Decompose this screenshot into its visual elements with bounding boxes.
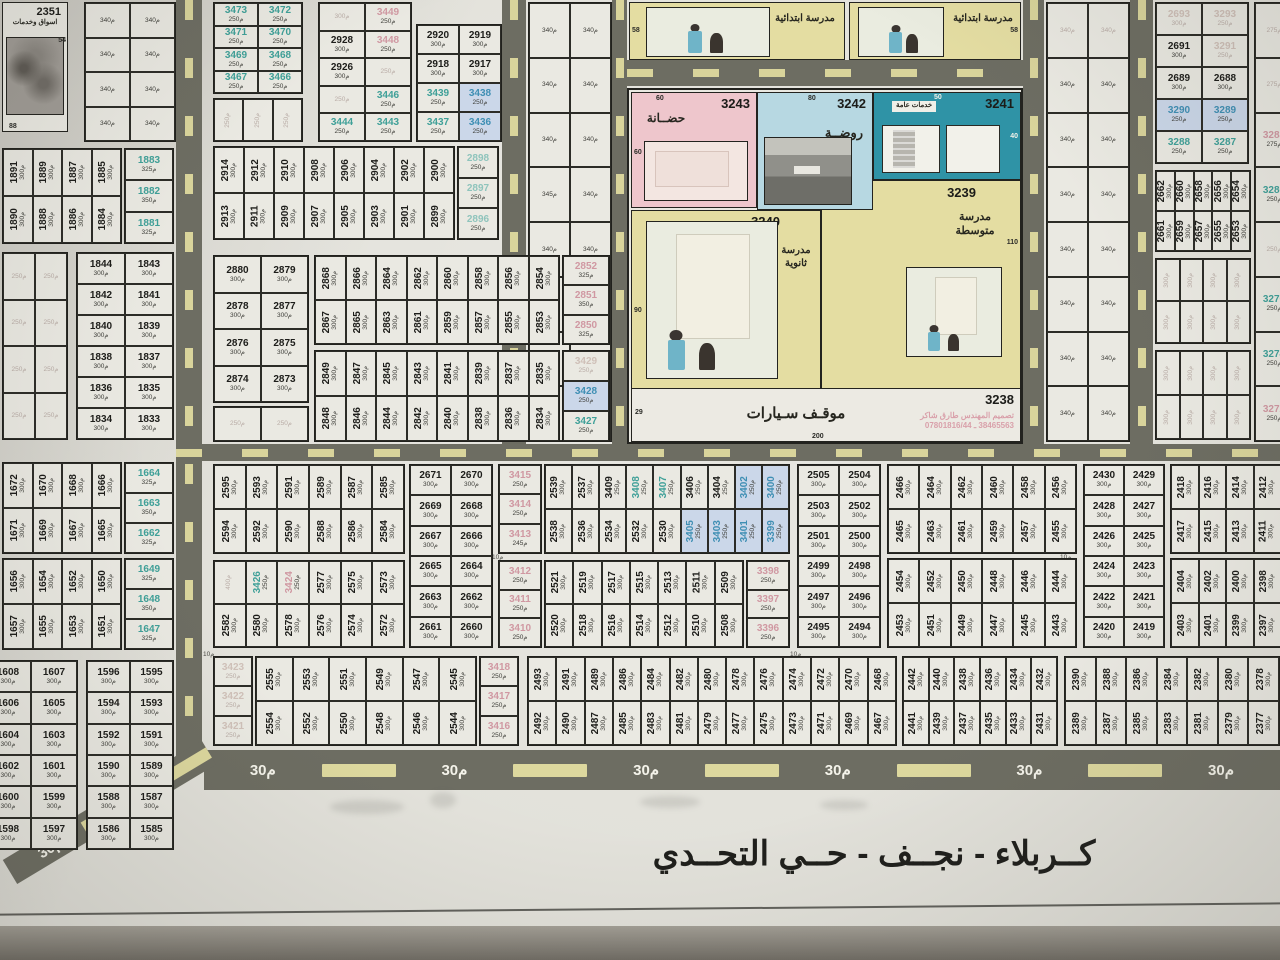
plot-2834: 2834م300	[529, 396, 560, 441]
plot-2668: 2668م300	[451, 495, 492, 525]
plot-2466: 2466م300	[888, 465, 919, 509]
plot-unlabeled: م340	[130, 107, 175, 142]
plot-2458: 2458م300	[1013, 465, 1044, 509]
plot-2875: 2875م300	[261, 329, 308, 366]
plot-2419: 2419م300	[1124, 617, 1164, 647]
plot-2586: 2586م300	[341, 509, 373, 553]
plot-3437: 3437م250	[417, 112, 459, 141]
plot-block-m2898: 2898م2502897م2502896م250	[457, 146, 499, 240]
plot-1666: 1666م300	[92, 463, 122, 508]
plot-unlabeled: م340	[570, 58, 611, 113]
plot-3470: 3470م250	[258, 26, 302, 49]
plot-2670: 2670م300	[451, 465, 492, 495]
plot-1604: 1604م300	[0, 724, 31, 755]
plot-2414: 2414م300	[1226, 465, 1254, 509]
plot-block-m2880: 2880م3002879م3002878م3002877م3002876م300…	[213, 255, 309, 403]
plot-3404: 3404م250	[708, 465, 735, 509]
plot-2539: 2539م300	[545, 465, 572, 509]
dim-label: 60	[656, 95, 664, 102]
plot-2450: 2450م300	[951, 559, 982, 603]
plot-1587: 1587م300	[130, 786, 173, 817]
plot-1672: 1672م300	[3, 463, 33, 508]
plot-block-mb2404: 2404م3002402م3002400م3002398م3002403م300…	[1170, 558, 1280, 648]
plot-2862: 2862م300	[407, 256, 438, 300]
plot-2848: 2848م300	[315, 396, 346, 441]
plot-3421: 3421م250	[214, 716, 252, 745]
plot-1585: 1585م300	[130, 818, 173, 849]
plot-1883: 1883م325	[125, 149, 173, 180]
dim-label: 58	[1010, 27, 1018, 34]
plot-unlabeled: م340	[1088, 332, 1129, 387]
plot-unlabeled: م340	[1047, 222, 1088, 277]
plot-2440: 2440م300	[929, 657, 955, 701]
plot-3403: 3403م250	[708, 509, 735, 553]
plot-2453: 2453م300	[888, 603, 919, 647]
plot-1835: 1835م300	[125, 377, 173, 408]
plot-2510: 2510م300	[686, 604, 714, 647]
plot-2496: 2496م300	[839, 586, 880, 616]
plot-1888: 1888م300	[33, 196, 63, 243]
plot-2578: 2578م300	[277, 604, 309, 647]
plot-2441: 2441م300	[903, 701, 929, 745]
plot-2576: 2576م300	[309, 604, 341, 647]
plot-2385: 2385م300	[1126, 701, 1157, 745]
plot-3289: 3289م250	[1202, 99, 1248, 131]
kid-figure-icon	[710, 33, 723, 53]
plot-2876: 2876م300	[214, 329, 261, 366]
plot-2397: 2397م300	[1254, 603, 1280, 647]
plot-2595: 2595م300	[214, 465, 246, 509]
plot-2538: 2538م300	[545, 509, 572, 553]
plot-2585: 2585م300	[372, 465, 404, 509]
plot-2855: 2855م300	[498, 300, 529, 344]
plot-2477: 2477م300	[726, 701, 754, 745]
plot-unlabeled: م300	[1203, 259, 1227, 301]
plot-2573: 2573م300	[372, 561, 404, 604]
plot-2429: 2429م300	[1124, 465, 1164, 495]
plot-unlabeled: م340	[85, 3, 130, 38]
block-id: 3238	[985, 392, 1014, 407]
block-id: 3242	[837, 96, 866, 111]
plot-2906: 2906م300	[334, 147, 364, 193]
block-label: مدرسة ثانوية	[776, 245, 816, 270]
dim-label: 200	[812, 433, 824, 440]
plot-unlabeled: م340	[529, 3, 570, 58]
plot-unlabeled: م340	[130, 38, 175, 73]
paper-edge-line	[0, 902, 1280, 915]
plot-block-bb3418: 3418م2503417م2503416م250	[479, 656, 519, 746]
plot-2851: 2851م350	[563, 285, 609, 314]
plot-2854: 2854م300	[529, 256, 560, 300]
plot-3406: 3406م250	[681, 465, 708, 509]
plot-2688: 2688م300	[1202, 67, 1248, 99]
plot-2660: 2660م300	[1175, 171, 1194, 211]
plot-2476: 2476م300	[754, 657, 782, 701]
plot-block-l1607: 1608م3001607م3001606م3001605م3001604م300…	[0, 660, 78, 850]
plot-2863: 2863م300	[376, 300, 407, 344]
plot-1889: 1889م300	[33, 149, 63, 196]
plot-2508: 2508م300	[715, 604, 743, 647]
plot-3398: 3398م250	[747, 561, 789, 590]
plot-2500: 2500م300	[839, 526, 880, 556]
plot-unlabeled: م340	[85, 72, 130, 107]
school-drawing	[646, 7, 770, 57]
plot-3407: 3407م250	[653, 465, 680, 509]
plot-3413: 3413م245	[499, 524, 541, 553]
plot-2467: 2467م300	[868, 701, 896, 745]
plot-2424: 2424م300	[1084, 556, 1124, 586]
plot-1657: 1657م300	[3, 604, 33, 649]
plot-2860: 2860م300	[437, 256, 468, 300]
road-dash	[513, 764, 587, 777]
plot-block-r2691: 2693م3003293م2502691م3003291م2502689م300…	[1155, 2, 1249, 164]
plot-2502: 2502م300	[839, 495, 880, 525]
plot-block-rfadeB: م300م300م300م300م300م300م300م300	[1155, 350, 1251, 440]
plot-block-mb2539: 2539م3002537م3003409م2503408م2503407م250…	[544, 464, 790, 554]
plot-2470: 2470م300	[839, 657, 867, 701]
plot-2575: 2575م300	[341, 561, 373, 604]
plot-unlabeled: م300	[319, 3, 365, 31]
plot-1839: 1839م300	[125, 315, 173, 346]
plot-1884: 1884م300	[92, 196, 122, 243]
plot-1653: 1653م300	[62, 604, 92, 649]
plot-2662: 2662م300	[1156, 171, 1175, 211]
plot-2411: 2411م300	[1254, 509, 1280, 553]
plot-1654: 1654م300	[33, 559, 63, 604]
block-label: خدمات عامة	[892, 101, 936, 112]
plot-unlabeled: م250	[35, 346, 67, 393]
plot-2659: 2659م300	[1175, 211, 1194, 251]
plot-1602: 1602م300	[0, 755, 31, 786]
plot-unlabeled: م250	[3, 300, 35, 347]
plot-2487: 2487م300	[585, 701, 613, 745]
plot-2835: 2835م300	[529, 351, 560, 396]
plot-2850: 2850م325	[563, 315, 609, 344]
plot-block-r2662: 2662م3002660م3002658م3002656م3002654م300…	[1155, 170, 1251, 252]
plot-2655: 2655م300	[1212, 211, 1231, 251]
plot-1596: 1596م300	[87, 661, 130, 692]
plot-2492: 2492م300	[528, 701, 556, 745]
plot-1593: 1593م300	[130, 692, 173, 723]
road-main-30m: 30م30م30م30م30م30م	[204, 750, 1280, 790]
plot-1652: 1652م300	[62, 559, 92, 604]
plot-2846: 2846م300	[346, 396, 377, 441]
plot-2404: 2404م300	[1171, 559, 1199, 603]
plot-unlabeled: م275	[1255, 58, 1280, 113]
plot-2457: 2457م300	[1013, 509, 1044, 553]
plot-1841: 1841م300	[125, 284, 173, 315]
plot-unlabeled: م250	[35, 253, 67, 300]
plot-3408: 3408م250	[626, 465, 653, 509]
plot-2653: 2653م300	[1231, 211, 1250, 251]
plot-3290: 3290م250	[1156, 99, 1202, 131]
plot-1606: 1606م300	[0, 692, 31, 723]
plot-2456: 2456م300	[1045, 465, 1076, 509]
plot-unlabeled: م340	[1047, 3, 1088, 58]
plot-block-la340: م340م340م340م340م340م340م340م340	[84, 2, 176, 142]
plot-2897: 2897م250	[458, 178, 498, 209]
plot-unlabeled: م300	[1156, 301, 1180, 343]
plot-2403: 2403م300	[1171, 603, 1199, 647]
plot-2868: 2868م300	[315, 256, 346, 300]
plot-2505: 2505م300	[798, 465, 839, 495]
plot-2514: 2514م300	[630, 604, 658, 647]
plot-1599: 1599م300	[31, 786, 77, 817]
plot-2422: 2422م300	[1084, 586, 1124, 616]
plot-unlabeled: م250	[3, 346, 35, 393]
plot-2482: 2482م300	[670, 657, 698, 701]
plot-2402: 2402م300	[1199, 559, 1227, 603]
plot-2383: 2383م300	[1157, 701, 1188, 745]
kid-figure-icon	[948, 334, 959, 351]
plot-2486: 2486م300	[613, 657, 641, 701]
plot-2465: 2465م300	[888, 509, 919, 553]
plot-2513: 2513م300	[658, 561, 686, 604]
road-dash	[897, 764, 971, 777]
plot-3276: 3276م250	[1255, 277, 1280, 332]
plot-block-bb3423: 3423م2503422م2503421م250	[213, 656, 253, 746]
plot-2873: 2873م300	[261, 366, 308, 403]
plot-2436: 2436م300	[980, 657, 1006, 701]
plot-1671: 1671م300	[3, 508, 33, 553]
plot-block-m2928: م3003449م2502928م3003448م2502926م300م250…	[318, 2, 412, 142]
plot-block-m2868: 2868م3002866م3002864م3002862م3002860م300…	[314, 255, 560, 345]
plot-unlabeled: م340	[1047, 58, 1088, 113]
plot-2919: 2919م300	[459, 25, 501, 54]
dim-label: 40	[1010, 133, 1018, 140]
plot-1650: 1650م300	[92, 559, 122, 604]
plot-1601: 1601م300	[31, 755, 77, 786]
plot-2534: 2534م300	[599, 509, 626, 553]
plot-2902: 2902م300	[394, 147, 424, 193]
plot-2413: 2413م300	[1226, 509, 1254, 553]
road-vertical-2	[612, 0, 627, 444]
plot-unlabeled: م300	[1203, 301, 1227, 343]
plot-1881: 1881م325	[125, 212, 173, 243]
plot-block-bb2442: 2442م3002440م3002438م3002436م3002434م300…	[902, 656, 1058, 746]
plot-3405: 3405م250	[681, 509, 708, 553]
road-30m-label: 30م	[250, 761, 276, 779]
plot-2657: 2657م300	[1194, 211, 1213, 251]
building-sketch	[935, 277, 976, 335]
plot-2518: 2518م300	[573, 604, 601, 647]
road-30m-label: 30م	[1016, 761, 1042, 779]
plot-2379: 2379م300	[1218, 701, 1249, 745]
plot-2427: 2427م300	[1124, 495, 1164, 525]
plot-2658: 2658م300	[1194, 171, 1213, 211]
plot-2847: 2847م300	[346, 351, 377, 396]
plot-2580: 2580م300	[246, 604, 278, 647]
plot-2843: 2843م300	[407, 351, 438, 396]
plot-2399: 2399م300	[1226, 603, 1254, 647]
plot-3272: 3272م250	[1255, 386, 1280, 441]
plot-2572: 2572م300	[372, 604, 404, 647]
plot-2469: 2469م300	[839, 701, 867, 745]
plot-3287: 3287م250	[1202, 131, 1248, 163]
plot-2920: 2920م300	[417, 25, 459, 54]
plot-2499: 2499م300	[798, 556, 839, 586]
plot-1885: 1885م300	[92, 149, 122, 196]
plot-2867: 2867م300	[315, 300, 346, 344]
plot-2478: 2478م300	[726, 657, 754, 701]
plot-unlabeled: م340	[1088, 58, 1129, 113]
plot-3448: 3448م250	[365, 31, 411, 59]
plot-2420: 2420م300	[1084, 617, 1124, 647]
plot-unlabeled: م250	[1255, 222, 1280, 277]
plot-2415: 2415م300	[1199, 509, 1227, 553]
plot-block-m2920: 2920م3002919م3002918م3002917م3003439م250…	[416, 24, 502, 142]
kindergarten-photo	[764, 137, 852, 205]
plot-unlabeled: م250	[35, 393, 67, 440]
plot-unlabeled: م340	[1047, 167, 1088, 222]
plot-unlabeled: م340	[1088, 167, 1129, 222]
building-sketch	[676, 234, 751, 339]
plot-block-l1891: 1891م3001889م3001887م3001885م3001890م300…	[2, 148, 122, 244]
plot-2912: 2912م300	[244, 147, 274, 193]
plot-3428: 3428م250	[563, 381, 609, 411]
plot-3283: 3283م275	[1255, 113, 1280, 168]
road-30m-label: 30م	[441, 761, 467, 779]
plot-2462: 2462م300	[951, 465, 982, 509]
plot-block-mb2430: 2430م3002429م3002428م3002427م3002426م300…	[1083, 464, 1165, 648]
plot-unlabeled: م400	[214, 561, 246, 604]
plot-3280: 3280م250	[1255, 167, 1280, 222]
plot-2840: 2840م300	[437, 396, 468, 441]
plot-2837: 2837م300	[498, 351, 529, 396]
plot-2660: 2660م300	[451, 617, 492, 647]
plot-2381: 2381م300	[1187, 701, 1218, 745]
plot-2842: 2842م300	[407, 396, 438, 441]
plot-1662: 1662م325	[125, 523, 173, 553]
plot-2387: 2387م300	[1096, 701, 1127, 745]
map-title: كــربلاء - نجــف - حــي التحــدي	[648, 834, 1100, 874]
plot-1663: 1663م350	[125, 493, 173, 523]
plot-2471: 2471م300	[811, 701, 839, 745]
plot-2536: 2536م300	[572, 509, 599, 553]
plot-block-mb3415: 3415م2503414م2503413م245	[498, 464, 542, 554]
plot-2836: 2836م300	[498, 396, 529, 441]
plot-2444: 2444م300	[1045, 559, 1076, 603]
plot-2656: 2656م300	[1212, 171, 1231, 211]
plot-unlabeled: م340	[1047, 332, 1088, 387]
plot-2432: 2432م300	[1031, 657, 1057, 701]
plot-unlabeled: م340	[570, 3, 611, 58]
plot-3469: 3469م250	[214, 48, 258, 71]
plot-2880: 2880م300	[214, 256, 261, 293]
plot-2589: 2589م300	[309, 465, 341, 509]
road-30m-label: 30م	[825, 761, 851, 779]
plot-block-mb2454: 2454م3002452م3002450م3002448م3002446م300…	[887, 558, 1077, 648]
plot-2689: 2689م300	[1156, 67, 1202, 99]
plot-2588: 2588م300	[309, 509, 341, 553]
plot-3291: 3291م250	[1202, 35, 1248, 67]
plot-2845: 2845م300	[376, 351, 407, 396]
school-elementary-b: مدرسة ابتدائية 58	[849, 2, 1021, 60]
pencil-smudge	[330, 800, 404, 814]
block-3238-parking: 3238 موقـف سـيارات تصميم المهندس طارق شا…	[631, 388, 1021, 442]
plot-2417: 2417م300	[1171, 509, 1199, 553]
plot-2859: 2859م300	[437, 300, 468, 344]
plot-2907: 2907م300	[304, 193, 334, 239]
plot-block-bb2555: 2555م3002553م3002551م3002549م3002547م300…	[255, 656, 477, 746]
plot-2911: 2911م300	[244, 193, 274, 239]
road-dash	[1088, 764, 1162, 777]
plot-1837: 1837م300	[125, 346, 173, 377]
plot-2390: 2390م300	[1065, 657, 1096, 701]
plot-1668: 1668م300	[62, 463, 92, 508]
plot-2495: 2495م300	[798, 617, 839, 647]
plot-2530: 2530م300	[653, 509, 680, 553]
plot-2483: 2483م300	[641, 701, 669, 745]
block-3242-kindergarten: 3242 روضــة 80	[757, 92, 873, 210]
plot-2517: 2517م300	[602, 561, 630, 604]
plot-3472: 3472م250	[258, 3, 302, 26]
plot-2497: 2497م300	[798, 586, 839, 616]
plot-2416: 2416م300	[1199, 465, 1227, 509]
plot-2454: 2454م300	[888, 559, 919, 603]
plot-block-l1844: 1844م3001843م3001842م3001841م3001840م300…	[76, 252, 174, 440]
plot-3449: 3449م250	[365, 3, 411, 31]
plot-3439: 3439م250	[417, 83, 459, 112]
plot-2577: 2577م300	[309, 561, 341, 604]
plot-2574: 2574م300	[341, 604, 373, 647]
plot-1655: 1655م300	[33, 604, 63, 649]
dim-label: 90	[634, 307, 642, 314]
plot-1667: 1667م300	[62, 508, 92, 553]
plot-2928: 2928م300	[319, 31, 365, 59]
plot-2446: 2446م300	[1013, 559, 1044, 603]
plot-2900: 2900م300	[424, 147, 454, 193]
plot-1656: 1656م300	[3, 559, 33, 604]
plot-2878: 2878م300	[214, 293, 261, 330]
plot-unlabeled: م345	[529, 167, 570, 222]
plot-2909: 2909م300	[274, 193, 304, 239]
plot-unlabeled: م300	[1156, 351, 1180, 395]
kid-figure-icon	[699, 343, 715, 370]
plot-1840: 1840م300	[77, 315, 125, 346]
plot-2914: 2914م300	[214, 147, 244, 193]
plot-3397: 3397م250	[747, 590, 789, 619]
pencil-smudge	[430, 792, 456, 808]
plot-unlabeled: م340	[1088, 3, 1129, 58]
plot-3468: 3468م250	[258, 48, 302, 71]
plot-1670: 1670م300	[33, 463, 63, 508]
plot-2661: 2661م300	[410, 617, 451, 647]
plot-2511: 2511م300	[686, 561, 714, 604]
plot-2856: 2856م300	[498, 256, 529, 300]
plot-2691: 2691م300	[1156, 35, 1202, 67]
plot-2905: 2905م300	[334, 193, 364, 239]
plot-block-mb2595: 2595م3002593م3002591م3002589م3002587م300…	[213, 464, 405, 554]
plot-1598: 1598م300	[0, 818, 31, 849]
plot-2438: 2438م300	[954, 657, 980, 701]
plot-unlabeled: م340	[1088, 386, 1129, 441]
plot-unlabeled: م300	[1227, 395, 1251, 439]
plot-2665: 2665م300	[410, 556, 451, 586]
plot-2460: 2460م300	[982, 465, 1013, 509]
plot-2548: 2548م300	[366, 701, 403, 745]
plot-2412: 2412م300	[1254, 465, 1280, 509]
plot-2662: 2662م300	[451, 586, 492, 616]
kid-figure-icon	[928, 332, 940, 351]
plot-3400: 3400م250	[762, 465, 789, 509]
plot-1651: 1651م300	[92, 604, 122, 649]
plot-2494: 2494م300	[839, 617, 880, 647]
plot-2431: 2431م300	[1031, 701, 1057, 745]
plot-3411: 3411م250	[499, 590, 541, 619]
plot-2516: 2516م300	[602, 604, 630, 647]
plot-2901: 2901م300	[394, 193, 424, 239]
